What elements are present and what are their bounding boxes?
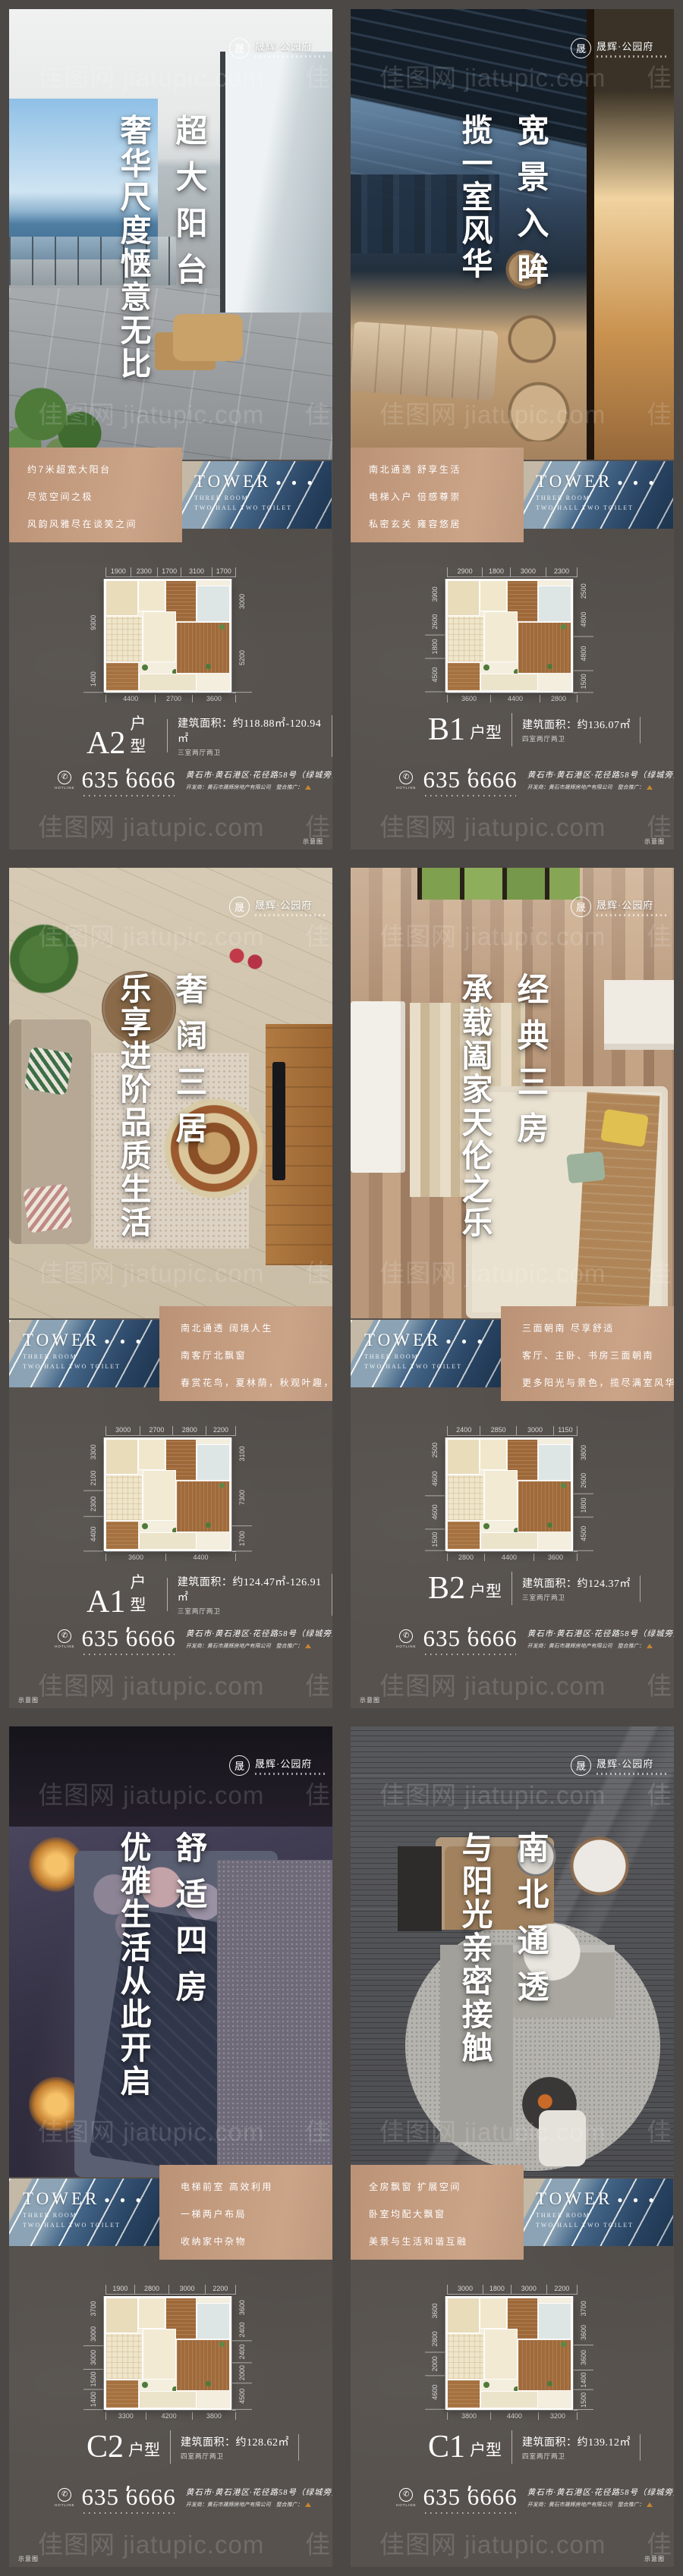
- floor-plan: 2400285030001150 2500460046001500 380026…: [351, 1426, 674, 1561]
- dimension-label: 1500: [574, 671, 593, 693]
- plan-dims-right: 3800260018004500: [573, 1437, 593, 1551]
- plan-room: [138, 580, 165, 611]
- brand-logo-icon: 晟: [571, 38, 591, 58]
- hotline: ✆HOTLINE: [55, 2488, 75, 2507]
- brand-logo: 晟 晟辉·公园府: [229, 38, 325, 58]
- hotline: ✆HOTLINE: [55, 1629, 75, 1648]
- floor-plan-drawing: [445, 2296, 573, 2410]
- tower-dots: ● ● ●: [617, 2194, 657, 2205]
- address-block: 黄石市·黄石港区·花径路58号（绿城旁） 开发商：黄石市晟辉房地产有限公司 整合…: [186, 769, 332, 791]
- poster-sheet: 晟 晟辉·公园府 超大阳台 奢华尺度惬意无比 示意图 约7米超宽大阳台尽览空间之…: [0, 0, 683, 2576]
- unit-name: C1: [428, 2432, 465, 2462]
- dimension-label: 2800: [172, 1426, 206, 1435]
- dimension-label: 3000: [83, 2345, 103, 2370]
- plan-dims-right: 310073001700: [231, 1437, 252, 1551]
- dimension-label: 9300: [83, 579, 103, 666]
- hotline-label: HOTLINE: [396, 786, 417, 790]
- selling-point: 客厅、主卧、书房三面朝南: [522, 1350, 659, 1362]
- dimension-label: 3800: [447, 2412, 490, 2420]
- dimension-label: 5200: [232, 624, 252, 693]
- dimension-label: 2500: [425, 1437, 445, 1462]
- brand-name: 晟辉·公园府: [255, 897, 325, 912]
- plan-room: [197, 586, 230, 622]
- headline-secondary: 优雅生活从此开启: [110, 1831, 156, 2165]
- dimension-label: 4800: [574, 637, 593, 671]
- dimension-label: 3200: [538, 2412, 578, 2420]
- plan-room: [480, 2298, 507, 2329]
- dimension-label: 4200: [146, 2412, 192, 2420]
- plan-room: [176, 2339, 230, 2390]
- selling-point: 电梯前室 高效利用: [181, 2182, 317, 2193]
- plan-room: [176, 622, 230, 673]
- selling-point: 收纳家中杂物: [181, 2236, 317, 2248]
- dimension-label: 1700: [232, 1526, 252, 1551]
- plan-dims-right: 37003600360014001500: [573, 2296, 593, 2410]
- developer-line: 开发商：黄石市晟辉房地产有限公司 整合推广：: [186, 2501, 332, 2508]
- plan-room: [484, 2329, 518, 2380]
- selling-point: 南北通透 阔境人生: [181, 1323, 317, 1334]
- floor-plan-drawing: [445, 1437, 573, 1551]
- phone-icon: ✆: [58, 1629, 71, 1643]
- dimension-label: 4600: [425, 1496, 445, 1529]
- dimension-label: 1400: [83, 666, 103, 693]
- plan-dims-bottom: 280044003600: [447, 1551, 578, 1561]
- plan-room: [447, 616, 484, 662]
- plan-room: [447, 2380, 480, 2408]
- tower-subtitle: THREE ROOM: [536, 2212, 673, 2219]
- dimension-label: 4400: [484, 1553, 533, 1561]
- photo-graphic: [600, 1109, 649, 1148]
- plan-dims-bottom: 330042003800: [105, 2410, 236, 2420]
- schematic-label: 示意图: [18, 2555, 39, 2563]
- dimension-label: 2200: [546, 2285, 578, 2294]
- dimension-label: 2200: [206, 1426, 236, 1435]
- plan-dims-left: 2500460046001500: [425, 1437, 445, 1551]
- brand-logo: 晟 晟辉·公园府: [229, 1755, 325, 1776]
- hotline-label: HOTLINE: [55, 1645, 75, 1648]
- tower-banner: TOWER ● ● ● THREE ROOM TWO HALL TWO TOIL…: [9, 1320, 160, 1387]
- selling-points: 南北通透 舒享生活电梯入户 倍感尊崇私密玄关 雍容悠居: [351, 448, 524, 542]
- dimension-label: 3000: [447, 2285, 483, 2294]
- plan-dims-bottom: 360044002800: [447, 693, 578, 702]
- plan-room: [447, 580, 480, 616]
- floor-plan: 19002300170031001700 93001400 30005200 4…: [9, 567, 332, 702]
- headline-primary: 经典三房: [508, 972, 554, 1306]
- unit-name: A2: [87, 728, 125, 759]
- phone-icon: ✆: [399, 2488, 413, 2502]
- dimension-label: 3900: [425, 579, 445, 609]
- floor-plan: 3000270028002200 3300210023004400 310073…: [9, 1426, 332, 1561]
- plan-dims-top: 3000180030002200: [447, 2285, 578, 2295]
- selling-point: 南客厅北飘窗: [181, 1350, 317, 1362]
- tower-subtitle: TWO HALL TWO TOILET: [23, 2222, 160, 2229]
- phone-number: 635 6666: [423, 766, 518, 793]
- selling-point: 全房飘窗 扩展空间: [369, 2182, 508, 2193]
- divider: [167, 719, 168, 752]
- photo-graphic: [217, 1860, 332, 2171]
- tower-banner: TOWER ● ● ● THREE ROOM TWO HALL TWO TOIL…: [9, 2179, 160, 2246]
- unit-suffix: 户型: [130, 1572, 157, 1617]
- tower-dots: ● ● ●: [445, 1336, 486, 1346]
- plan-room: [105, 2333, 143, 2380]
- headline-secondary: 乐享进阶品质生活: [110, 972, 156, 1306]
- brand-logo-icon: 晟: [229, 38, 250, 58]
- dimension-label: 4400: [105, 695, 155, 702]
- dimension-label: 4400: [83, 1517, 103, 1551]
- address-block: 黄石市·黄石港区·花径路58号（绿城旁） 开发商：黄石市晟辉房地产有限公司 整合…: [186, 2486, 332, 2508]
- dimension-label: 4400: [490, 695, 540, 702]
- tower-dots: ● ● ●: [275, 477, 316, 488]
- dimension-label: 3000: [83, 2322, 103, 2346]
- tower-banner: TOWER ● ● ● THREE ROOM TWO HALL TWO TOIL…: [522, 2179, 673, 2246]
- dimension-label: 1900: [105, 567, 131, 576]
- headline-primary: 宽景入眸: [508, 114, 554, 448]
- address-block: 黄石市·黄石港区·花径路58号（绿城旁） 开发商：黄石市晟辉房地产有限公司 整合…: [186, 1628, 332, 1650]
- brand-logo: 晟 晟辉·公园府: [571, 897, 666, 917]
- selling-points: 三面朝南 尽享舒适客厅、主卧、书房三面朝南更多阳光与景色，揽尽满室风华: [501, 1306, 674, 1401]
- photo-graphic: [220, 52, 332, 313]
- contact-bar: ✆HOTLINE 635 6666 黄石市·黄石港区·花径路58号（绿城旁） 开…: [55, 762, 302, 798]
- plan-dims-right: 30005200: [231, 579, 252, 693]
- plan-room: [143, 1470, 176, 1521]
- photo-graphic: [9, 340, 123, 460]
- dimension-label: 2300: [131, 567, 157, 576]
- brand-logo-icon: 晟: [571, 1755, 591, 1776]
- tower-subtitle: THREE ROOM: [194, 495, 332, 501]
- plan-dims-left: 3300210023004400: [83, 1437, 104, 1551]
- developer-line: 开发商：黄石市晟辉房地产有限公司 整合推广：: [527, 1642, 674, 1650]
- dimension-label: 3600: [447, 695, 490, 702]
- tower-title: TOWER: [194, 472, 271, 492]
- tower-subtitle: TWO HALL TWO TOILET: [364, 1363, 502, 1370]
- dimension-label: 1800: [482, 567, 510, 576]
- unit-area: 建筑面积：约124.47㎡-126.91㎡: [178, 1574, 323, 1604]
- schematic-label: 示意图: [644, 2555, 665, 2563]
- dimension-label: 1500: [425, 1529, 445, 1551]
- plan-room: [538, 1444, 571, 1481]
- phone-number: 635 6666: [82, 766, 176, 793]
- divider: [167, 1578, 168, 1611]
- unit-suffix: 户型: [470, 722, 502, 745]
- photo-graphic: [24, 1047, 74, 1096]
- unit-rooms: 三室两厅两卫: [178, 1607, 323, 1616]
- plan-room: [518, 1481, 571, 1531]
- dimension-label: 2000: [425, 2352, 445, 2376]
- headline-secondary: 承载阖家天伦之乐: [452, 972, 497, 1306]
- dimension-label: 1400: [574, 2370, 593, 2390]
- plan-room: [105, 1475, 143, 1521]
- dimension-label: 2800: [134, 2285, 169, 2294]
- dimension-label: 7300: [232, 1470, 252, 1526]
- unit-info: C2户型 建筑面积：约128.62㎡ 四室两厅两卫: [87, 2430, 299, 2464]
- dimension-label: 2400: [232, 2320, 252, 2341]
- dimension-label: 3000: [510, 567, 546, 576]
- dimension-label: 2900: [447, 567, 482, 576]
- floor-plan: 1900280030002200 37003000300015001400 36…: [9, 2285, 332, 2420]
- hotline: ✆HOTLINE: [396, 2488, 417, 2507]
- tower-title: TOWER: [364, 1330, 441, 1350]
- dimension-label: 2800: [425, 2326, 445, 2352]
- address-block: 黄石市·黄石港区·花径路58号（绿城旁） 开发商：黄石市晟辉房地产有限公司 整合…: [527, 769, 674, 791]
- plan-room: [105, 2298, 138, 2333]
- headline: 超大阳台 奢华尺度惬意无比: [110, 114, 212, 448]
- plan-dims-right: 2500480048001500: [573, 579, 593, 693]
- plan-room: [447, 1521, 480, 1550]
- plan-room: [197, 2303, 230, 2339]
- brand-logo-icon: 晟: [229, 1755, 250, 1776]
- plan-dims-left: 37003000300015001400: [83, 2296, 104, 2410]
- developer-line: 开发商：黄石市晟辉房地产有限公司 整合推广：: [186, 1642, 332, 1650]
- agency-logo: [647, 785, 653, 790]
- phone-icon: ✆: [399, 1629, 413, 1643]
- brand-name: 晟辉·公园府: [596, 39, 666, 53]
- plan-room: [176, 1481, 230, 1531]
- dimension-label: 1150: [553, 1426, 578, 1435]
- tower-banner: TOWER ● ● ● THREE ROOM TWO HALL TWO TOIL…: [351, 1320, 502, 1387]
- plan-room: [105, 1521, 139, 1550]
- dimension-label: 2600: [574, 1468, 593, 1494]
- dimension-label: 2600: [425, 609, 445, 636]
- hotline: ✆HOTLINE: [55, 771, 75, 790]
- tower-subtitle: TWO HALL TWO TOILET: [536, 504, 673, 511]
- headline: 宽景入眸 揽一室风华: [452, 114, 554, 448]
- headline-primary: 南北通透: [508, 1831, 554, 2165]
- brand-logo: 晟 晟辉·公园府: [571, 1755, 666, 1776]
- dimension-label: 3700: [574, 2296, 593, 2320]
- unit-area: 建筑面积：约139.12㎡: [522, 2434, 631, 2449]
- unit-name: B1: [428, 715, 465, 745]
- brand-tagline: [255, 55, 325, 58]
- floor-plan-drawing: [445, 579, 573, 693]
- plan-room: [484, 611, 518, 662]
- dimension-label: 4800: [574, 603, 593, 637]
- dimension-label: 3600: [533, 1553, 578, 1561]
- photo-graphic: [23, 1183, 73, 1233]
- plan-dims-bottom: 36004400: [105, 1551, 236, 1561]
- headline: 经典三房 承载阖家天伦之乐: [452, 972, 554, 1306]
- dimension-label: 4400: [165, 1553, 236, 1561]
- selling-point: 更多阳光与景色，揽尽满室风华: [522, 1378, 659, 1389]
- poster-b2: 晟 晟辉·公园府 经典三房 承载阖家天伦之乐 示意图 三面朝南 尽享舒适客厅、主…: [351, 868, 674, 1708]
- brand-tagline: [596, 914, 666, 916]
- selling-points: 南北通透 阔境人生南客厅北飘窗春赏花鸟，夏林荫，秋观叶趣，冬沐阳: [159, 1306, 332, 1401]
- unit-rooms: 三室两厅两卫: [178, 748, 323, 757]
- dimension-label: 3600: [232, 2296, 252, 2320]
- dimension-label: 1500: [83, 2370, 103, 2389]
- photo-graphic: [417, 868, 580, 900]
- dimension-label: 3700: [83, 2296, 103, 2322]
- headline-secondary: 奢华尺度惬意无比: [110, 114, 156, 448]
- phone-number: 635 6666: [82, 2483, 176, 2511]
- tower-banner: TOWER ● ● ● THREE ROOM TWO HALL TWO TOIL…: [522, 461, 673, 529]
- selling-point: 卧室均配大飘窗: [369, 2209, 508, 2220]
- tower-banner: TOWER ● ● ● THREE ROOM TWO HALL TWO TOIL…: [181, 461, 332, 529]
- dimension-label: 1800: [483, 2285, 511, 2294]
- phone-number: 635 6666: [82, 1625, 176, 1652]
- unit-area: 建筑面积：约124.37㎡: [522, 1575, 631, 1591]
- headline-secondary: 揽一室风华: [452, 114, 497, 448]
- dimension-label: 3100: [232, 1437, 252, 1470]
- photo-graphic: [566, 1151, 606, 1184]
- phone-number: 635 6666: [423, 2483, 518, 2511]
- photo-graphic: [272, 1062, 285, 1180]
- contact-bar: ✆HOTLINE 635 6666 黄石市·黄石港区·花径路58号（绿城旁） 开…: [396, 2479, 644, 2515]
- plan-room: [447, 1439, 480, 1475]
- plan-room: [538, 586, 571, 622]
- dimension-label: 3300: [83, 1437, 103, 1466]
- selling-point: 美景与生活和谐互融: [369, 2236, 508, 2248]
- unit-area: 建筑面积：约136.07㎡: [522, 717, 631, 732]
- plan-room: [105, 616, 143, 662]
- hotline-label: HOTLINE: [55, 2503, 75, 2507]
- plan-room: [518, 2339, 571, 2390]
- plan-room: [480, 580, 507, 611]
- dimension-label: 3600: [574, 2345, 593, 2370]
- unit-rooms: 三室两厅两卫: [522, 1593, 631, 1602]
- selling-point: 南北通透 舒享生活: [369, 464, 508, 476]
- plan-room: [105, 1439, 138, 1475]
- selling-point: 尽览空间之极: [27, 492, 167, 503]
- brand-name: 晟辉·公园府: [255, 39, 325, 53]
- headline-primary: 超大阳台: [166, 114, 212, 448]
- unit-rooms: 四室两厅两卫: [522, 734, 631, 743]
- hotline: ✆HOTLINE: [396, 771, 417, 790]
- tower-title: TOWER: [23, 2189, 99, 2209]
- dimension-label: 2700: [155, 695, 191, 702]
- plan-room: [447, 2298, 480, 2333]
- dimension-label: 3000: [105, 1426, 140, 1435]
- plan-balcony: [480, 674, 537, 691]
- contact-bar: ✆HOTLINE 635 6666 黄石市·黄石港区·花径路58号（绿城旁） 开…: [55, 2479, 302, 2515]
- unit-info: B1户型 建筑面积：约136.07㎡ 四室两厅两卫: [428, 713, 641, 746]
- selling-points: 约7米超宽大阳台尽览空间之极风韵风雅尽在谈笑之间: [9, 448, 182, 542]
- dimension-label: 3000: [168, 2285, 204, 2294]
- brand-tagline: [255, 1773, 325, 1775]
- selling-point: 电梯入户 倍感尊崇: [369, 492, 508, 503]
- poster-a2: 晟 晟辉·公园府 超大阳台 奢华尺度惬意无比 示意图 约7米超宽大阳台尽览空间之…: [9, 9, 332, 850]
- tower-subtitle: THREE ROOM: [23, 2212, 160, 2219]
- divider: [511, 713, 512, 746]
- photo-graphic: [351, 1001, 405, 1173]
- dimension-label: 4500: [574, 1517, 593, 1551]
- floor-plan-drawing: [104, 1437, 231, 1551]
- plan-dims-top: 3000270028002200: [105, 1426, 236, 1436]
- plan-room: [447, 662, 480, 691]
- hotline-label: HOTLINE: [396, 2503, 417, 2507]
- tower-title: TOWER: [23, 1330, 99, 1350]
- plan-room: [538, 2303, 571, 2339]
- dimension-label: 4600: [425, 2376, 445, 2410]
- unit-area: 建筑面积：约128.62㎡: [181, 2434, 289, 2449]
- unit-name: C2: [87, 2432, 124, 2462]
- dimension-label: 3600: [105, 1553, 165, 1561]
- headline: 奢阔三居 乐享进阶品质生活: [110, 972, 212, 1306]
- dimension-label: 3300: [105, 2412, 146, 2420]
- unit-name: B2: [428, 1573, 465, 1604]
- selling-point: 三面朝南 尽享舒适: [522, 1323, 659, 1334]
- hotline-label: HOTLINE: [396, 1645, 417, 1648]
- dimension-label: 3600: [574, 2320, 593, 2345]
- plan-room: [518, 622, 571, 673]
- agency-logo: [305, 2502, 311, 2507]
- brand-tagline: [596, 55, 666, 58]
- developer-line: 开发商：黄石市晟辉房地产有限公司 整合推广：: [527, 784, 674, 791]
- dimension-label: 2100: [83, 1466, 103, 1491]
- unit-suffix: 户型: [128, 2439, 160, 2462]
- plan-balcony: [480, 1532, 537, 1550]
- plan-dims-left: 3600280020004600: [425, 2296, 445, 2410]
- address-block: 黄石市·黄石港区·花径路58号（绿城旁） 开发商：黄石市晟辉房地产有限公司 整合…: [527, 2486, 674, 2508]
- dimension-label: 3000: [232, 579, 252, 624]
- dimension-label: 2500: [574, 579, 593, 603]
- poster-b1: 晟 晟辉·公园府 宽景入眸 揽一室风华 示意图 南北通透 舒享生活电梯入户 倍感…: [351, 9, 674, 850]
- dimension-label: 2200: [205, 2285, 236, 2294]
- poster-c2: 晟 晟辉·公园府 舒适四房 优雅生活从此开启 示意图 电梯前室 高效利用一梯两户…: [9, 1726, 332, 2567]
- plan-dims-right: 36002400240020004500: [231, 2296, 252, 2410]
- plan-room: [143, 2329, 176, 2380]
- plan-room: [105, 2380, 139, 2408]
- poster-c1: 晟 晟辉·公园府 南北通透 与阳光亲密接触 示意图 全房飘窗 扩展空间卧室均配大…: [351, 1726, 674, 2567]
- plan-dims-left: 93001400: [83, 579, 104, 693]
- plan-balcony: [480, 2391, 537, 2408]
- tower-dots: ● ● ●: [617, 477, 657, 488]
- unit-info: C1户型 建筑面积：约139.12㎡ 四室两厅两卫: [428, 2430, 641, 2464]
- address: 黄石市·黄石港区·花径路58号（绿城旁）: [186, 769, 332, 781]
- dimension-label: 4600: [425, 1462, 445, 1496]
- unit-area: 建筑面积：约118.88㎡-120.94㎡: [178, 715, 323, 746]
- dimension-label: 1700: [157, 567, 181, 576]
- contact-bar: ✆HOTLINE 635 6666 黄石市·黄石港区·花径路58号（绿城旁） 开…: [396, 1620, 644, 1657]
- hotline-label: HOTLINE: [55, 786, 75, 790]
- plan-room: [138, 1439, 165, 1470]
- dimension-label: 2850: [480, 1426, 516, 1435]
- brand-logo: 晟 晟辉·公园府: [571, 38, 666, 58]
- unit-name: A1: [87, 1587, 125, 1617]
- photo-graphic: [587, 9, 674, 460]
- address: 黄石市·黄石港区·花径路58号（绿城旁）: [527, 1628, 674, 1639]
- selling-points: 电梯前室 高效利用一梯两户布局收纳家中杂物: [159, 2165, 332, 2260]
- tower-subtitle: TWO HALL TWO TOILET: [536, 2222, 673, 2229]
- plan-dims-top: 2400285030001150: [447, 1426, 578, 1436]
- floor-plan: 3000180030002200 3600280020004600 370036…: [351, 2285, 674, 2420]
- dimension-label: 4400: [490, 2412, 538, 2420]
- dimension-label: 1700: [212, 567, 237, 576]
- divider: [170, 2430, 171, 2464]
- unit-suffix: 户型: [130, 713, 157, 759]
- floor-plan-drawing: [104, 579, 231, 693]
- brand-name: 晟辉·公园府: [596, 1756, 666, 1770]
- dimension-label: 3000: [511, 2285, 546, 2294]
- dimension-label: 3800: [192, 2412, 236, 2420]
- selling-point: 春赏花鸟，夏林荫，秋观叶趣，冬沐阳: [181, 1378, 317, 1389]
- schematic-label: 示意图: [303, 837, 323, 846]
- selling-points: 全房飘窗 扩展空间卧室均配大飘窗美景与生活和谐互融: [351, 2165, 524, 2260]
- contact-bar: ✆HOTLINE 635 6666 黄石市·黄石港区·花径路58号（绿城旁） 开…: [396, 762, 644, 798]
- headline: 南北通透 与阳光亲密接触: [452, 1831, 554, 2165]
- plan-dims-bottom: 380044003200: [447, 2410, 578, 2420]
- agency-logo: [647, 2502, 653, 2507]
- selling-point: 一梯两户布局: [181, 2209, 317, 2220]
- dimension-label: 2000: [232, 2363, 252, 2383]
- brand-name: 晟辉·公园府: [255, 1756, 325, 1770]
- unit-info: B2户型 建筑面积：约124.37㎡ 三室两厅两卫: [428, 1572, 641, 1605]
- address-block: 黄石市·黄石港区·花径路58号（绿城旁） 开发商：黄石市晟辉房地产有限公司 整合…: [527, 1628, 674, 1650]
- tower-subtitle: THREE ROOM: [364, 1353, 502, 1360]
- plan-room: [143, 611, 176, 662]
- plan-balcony: [139, 674, 196, 691]
- dimension-label: 2700: [140, 1426, 172, 1435]
- selling-point: 风韵风雅尽在谈笑之间: [27, 519, 167, 530]
